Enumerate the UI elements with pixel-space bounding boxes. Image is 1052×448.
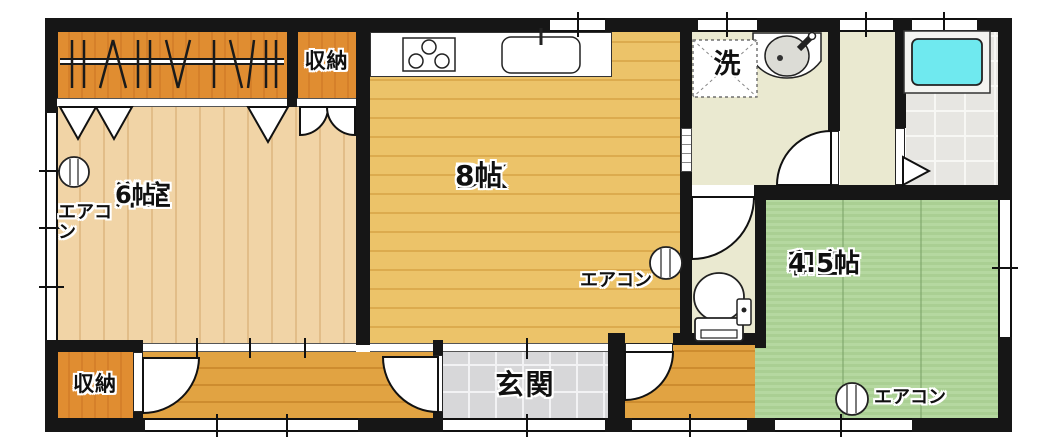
vanity-basin-icon (753, 33, 821, 79)
toilet-icon (694, 273, 751, 341)
bathtub-icon (904, 31, 990, 93)
japanese-room-size: 4.5帖 (788, 250, 860, 279)
ac-unit-japanese-icon (836, 383, 868, 415)
toilet-door-arc (692, 197, 754, 259)
aircon-label-western: エアコン (58, 203, 128, 243)
storage-top-double-door-icon (300, 107, 355, 135)
hallway-right-door-arc (625, 352, 673, 400)
aircon-label-dk: エアコン (572, 271, 652, 291)
bathroom-folding-door-icon (903, 157, 929, 185)
kitchen-sink-icon (502, 28, 580, 73)
storage-bottom-door-arc (143, 358, 199, 413)
entrance-label: 玄関 (443, 369, 608, 400)
entrance-left-door-arc (383, 357, 438, 412)
closet-folding-door-icon (60, 107, 288, 142)
storage-top-label: 収納 (297, 50, 356, 74)
laundry-label: 洗 (698, 50, 756, 80)
ac-unit-dk-icon (650, 247, 682, 279)
gas-stove-icon (403, 38, 455, 71)
dk-size: 8帖 (455, 160, 502, 191)
floor-plan: 洋室 6帖 DK 8帖 和室 4.5帖 収納 収納 玄関 洗 エアコン エアコン… (0, 0, 1052, 448)
aircon-label-japanese: エアコン (874, 388, 954, 408)
storage-bottom-label: 収納 (57, 373, 133, 397)
ac-unit-western-icon (59, 157, 89, 187)
hanger-marks-icon (72, 40, 276, 88)
washroom-door-arc (777, 131, 831, 185)
